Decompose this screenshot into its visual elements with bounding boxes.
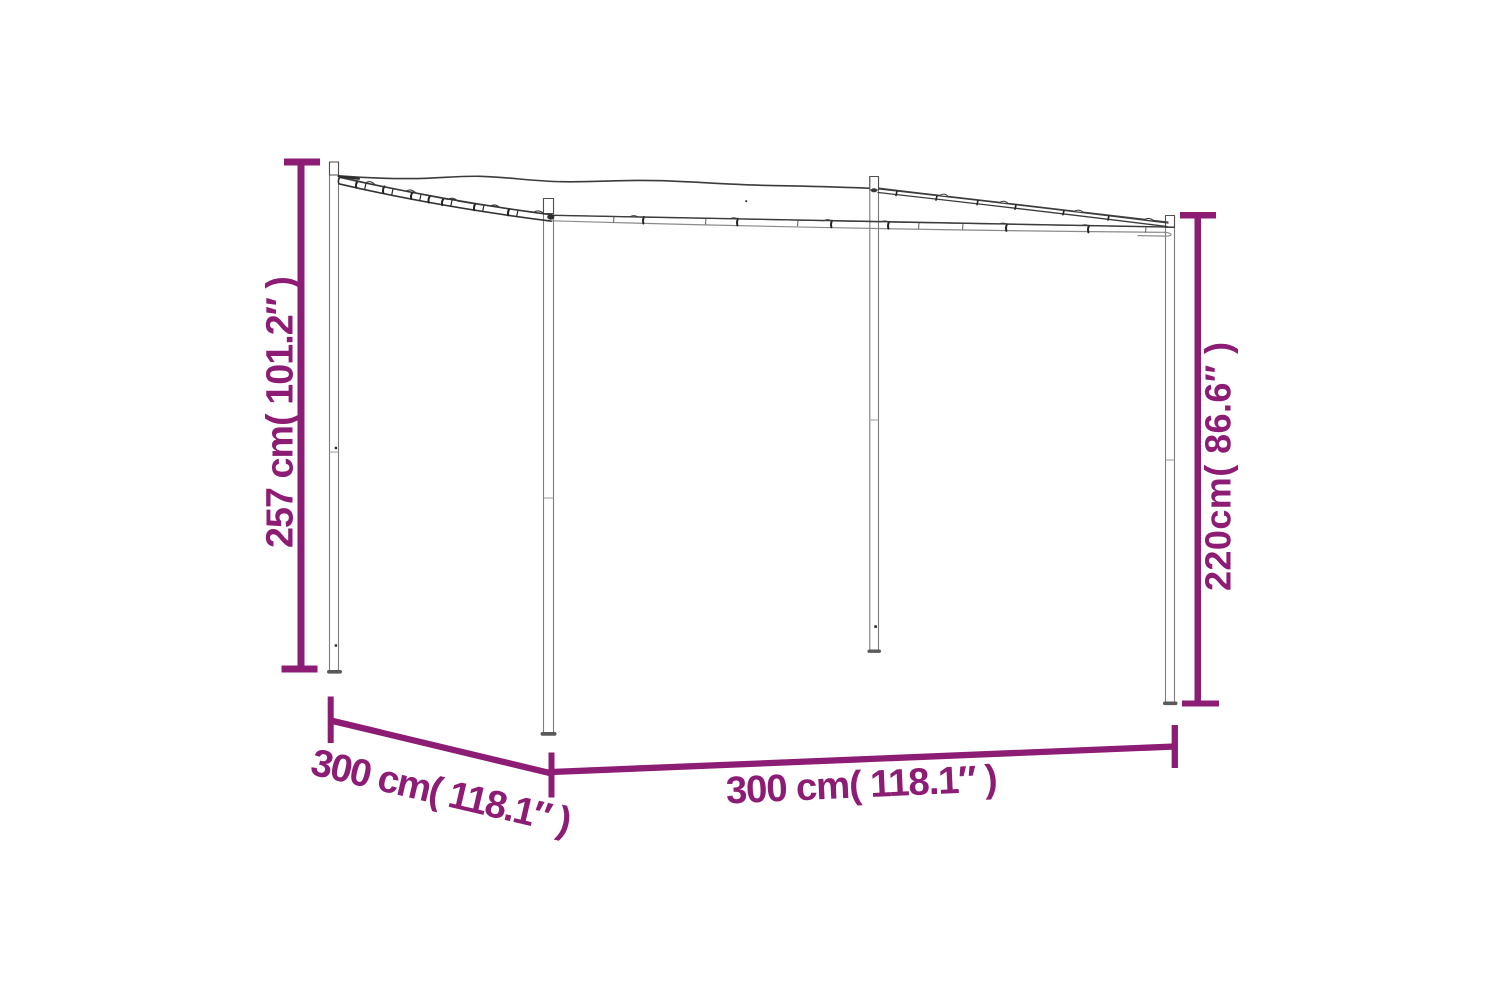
svg-text:220cm( 86.6″ ): 220cm( 86.6″ ) <box>1198 342 1239 591</box>
svg-text:257 cm( 101.2″ ): 257 cm( 101.2″ ) <box>259 276 301 548</box>
svg-text:300 cm( 118.1″ ): 300 cm( 118.1″ ) <box>307 741 576 844</box>
